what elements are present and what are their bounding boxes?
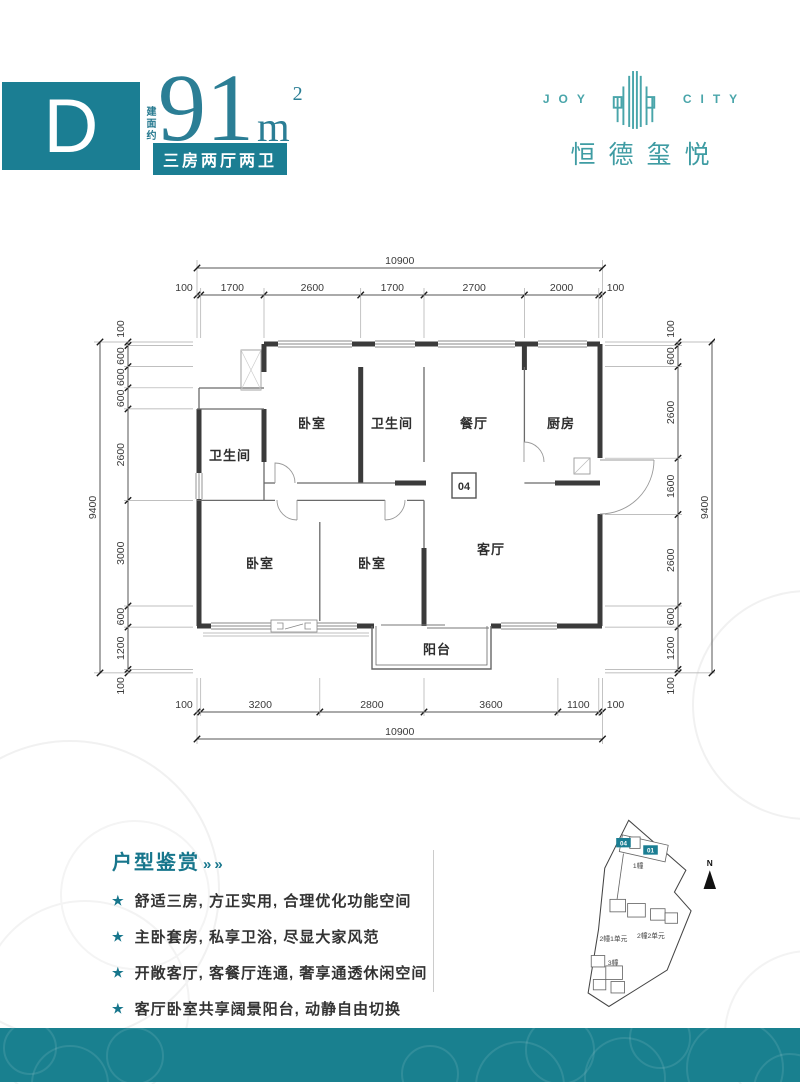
area-prefix: 建面约	[144, 106, 155, 142]
feature-item: ★ 开敞客厅, 客餐厅连通, 奢享通透休闲空间	[112, 962, 427, 983]
features-section: 户型鉴赏»» ★ 舒适三房, 方正实用, 合理优化功能空间 ★ 主卧套房, 私享…	[112, 846, 427, 1019]
dim-label: 100	[115, 320, 127, 338]
joy-city-building-icon	[607, 68, 661, 130]
footer-pattern	[0, 1028, 800, 1082]
room-kitchen: 厨房	[547, 416, 575, 431]
star-icon: ★	[112, 1001, 125, 1017]
unit-area: 建面约 91 m 2	[144, 66, 290, 143]
feature-text: 主卧套房, 私享卫浴, 尽显大家风范	[135, 926, 380, 947]
floorplan: 04 卧室 卫生间 餐厅 厨房 卫生间 卧室 卧室 客厅 阳台 10017002…	[85, 230, 715, 765]
feature-item: ★ 舒适三房, 方正实用, 合理优化功能空间	[112, 890, 427, 911]
brand-word-left: JOY	[534, 92, 594, 106]
unit-layout-badge: 三房两厅两卫	[153, 143, 287, 175]
room-bath-top: 卫生间	[371, 416, 413, 431]
star-icon: ★	[112, 929, 125, 945]
feature-text: 客厅卧室共享阔景阳台, 动静自由切换	[135, 998, 401, 1019]
dim-label: 100	[665, 320, 677, 338]
site-unit-a: 04	[620, 840, 627, 847]
dim-label: 600	[665, 608, 677, 626]
room-bedroom-mid: 卧室	[358, 556, 386, 571]
dim-label: 100	[175, 282, 193, 294]
dim-label: 100	[175, 699, 193, 711]
dim-label: 2700	[463, 282, 487, 294]
dim-label: 600	[115, 347, 127, 365]
dim-total-label: 9400	[87, 496, 99, 520]
dim-label: 3200	[249, 699, 273, 711]
dim-label: 600	[115, 389, 127, 407]
features-title: 户型鉴赏»»	[112, 846, 427, 875]
area-superscript: 2	[293, 84, 303, 104]
dim-label: 1700	[221, 282, 245, 294]
dim-label: 1100	[567, 699, 590, 711]
site-plan: 04 01 1幢 2幢1单元 2幢2单元 3幢 N	[530, 812, 770, 1020]
footer-band	[0, 1028, 800, 1082]
room-balcony: 阳台	[423, 642, 451, 657]
room-bath-left: 卫生间	[209, 448, 251, 463]
dim-label: 100	[665, 677, 677, 695]
site-building3-label: 3幢	[608, 958, 619, 967]
brand-name: 恒德玺悦	[498, 135, 782, 171]
dim-label: 2600	[115, 443, 127, 467]
dim-label: 1200	[665, 636, 677, 660]
dim-label: 100	[607, 282, 625, 294]
chevrons-icon: »	[214, 856, 222, 873]
star-icon: ★	[112, 965, 125, 981]
windows	[194, 339, 590, 636]
dim-total-label: 10900	[385, 255, 414, 267]
walls-thick	[197, 344, 602, 626]
site-building2u1-label: 2幢1单元	[600, 934, 628, 943]
star-icon: ★	[112, 893, 125, 909]
vertical-divider	[433, 850, 434, 992]
dim-label: 3600	[479, 699, 503, 711]
walls-thin	[197, 367, 555, 626]
room-bedroom-top: 卧室	[298, 416, 326, 431]
room-living: 客厅	[477, 542, 505, 557]
feature-text: 开敞客厅, 客餐厅连通, 奢享通透休闲空间	[135, 962, 428, 983]
feature-item: ★ 主卧套房, 私享卫浴, 尽显大家风范	[112, 926, 427, 947]
site-building1-label: 1幢	[633, 861, 644, 870]
feature-item: ★ 客厅卧室共享阔景阳台, 动静自由切换	[112, 998, 427, 1019]
dim-label: 2600	[301, 282, 325, 294]
brand-word-right: CITY	[674, 92, 746, 106]
area-value: 91	[158, 72, 254, 143]
dim-label: 2800	[360, 699, 384, 711]
site-building2u2-label: 2幢2单元	[637, 931, 665, 940]
dim-label: 1600	[665, 475, 677, 499]
dim-label: 600	[665, 347, 677, 365]
dim-label: 2600	[665, 401, 677, 425]
dim-total-label: 9400	[699, 496, 711, 520]
dim-label: 1700	[381, 282, 405, 294]
north-arrow-icon	[704, 870, 716, 889]
chevrons-icon: »	[203, 856, 211, 873]
dimension-annotations: 1001700260017002700200010010900100320028…	[87, 255, 715, 744]
dim-label: 2000	[550, 282, 574, 294]
room-bedroom-left: 卧室	[246, 556, 274, 571]
dim-label: 2600	[665, 548, 677, 572]
feature-text: 舒适三房, 方正实用, 合理优化功能空间	[135, 890, 412, 911]
area-unit: m 2	[257, 114, 290, 143]
north-label: N	[707, 858, 713, 868]
dim-label: 100	[607, 699, 625, 711]
dim-total-label: 10900	[385, 726, 414, 738]
site-unit-b: 01	[647, 848, 654, 855]
brand-logo: JOY CITY 恒德玺悦	[498, 68, 782, 171]
dim-label: 100	[115, 677, 127, 695]
dim-label: 600	[115, 368, 127, 386]
dim-label: 1200	[115, 636, 127, 660]
unit-number: 04	[458, 481, 471, 493]
unit-type-badge: D	[2, 82, 140, 170]
dim-label: 3000	[115, 541, 127, 565]
room-dining: 餐厅	[459, 416, 488, 431]
dim-label: 600	[115, 608, 127, 626]
page: D 建面约 91 m 2 三房两厅两卫 JOY CITY 恒德玺悦	[0, 0, 800, 1084]
